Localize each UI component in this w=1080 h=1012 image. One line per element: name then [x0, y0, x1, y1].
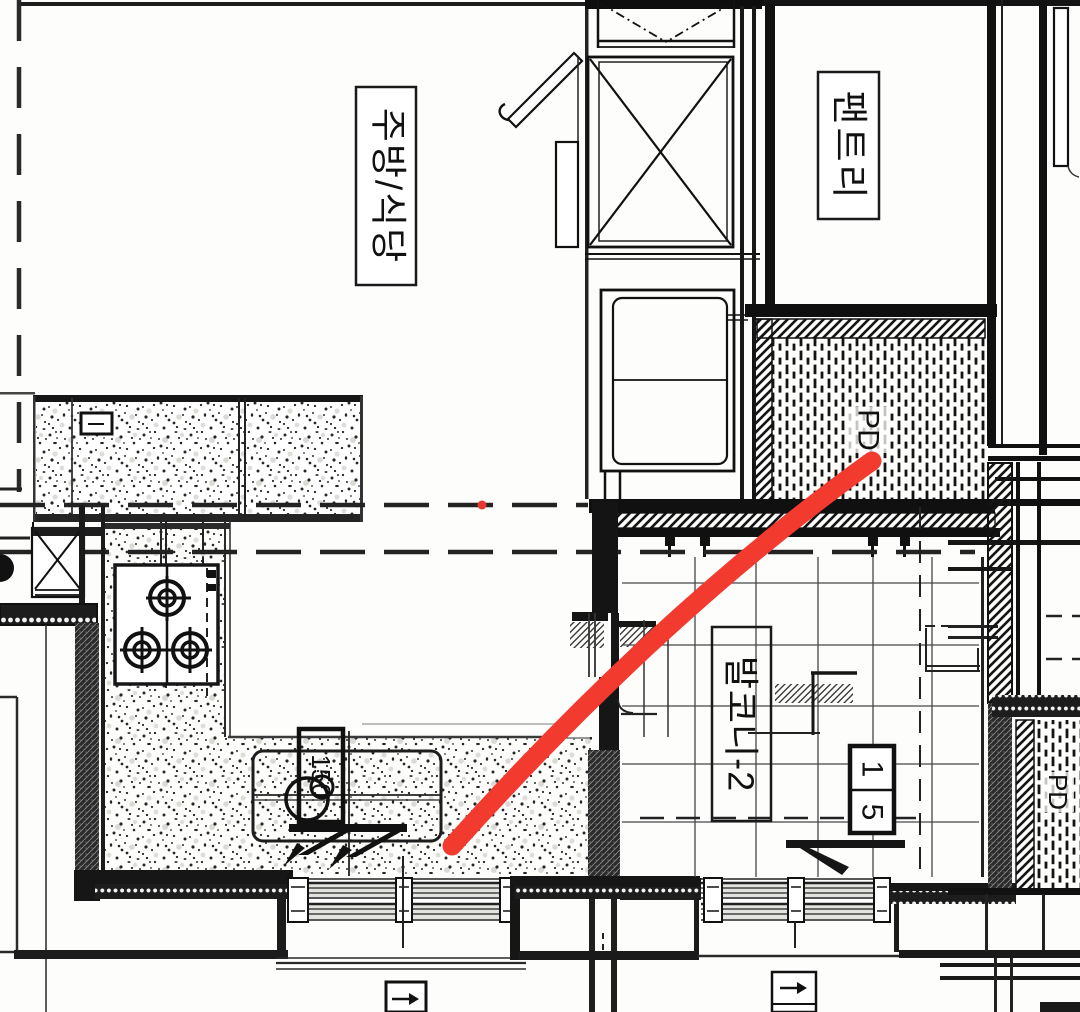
svg-text:발코니-2: 발코니-2: [721, 656, 762, 792]
svg-text:5: 5: [856, 804, 889, 821]
svg-text:팬트리: 팬트리: [829, 90, 870, 201]
svg-text:주방/식당: 주방/식당: [368, 108, 409, 264]
svg-text:150: 150: [306, 754, 336, 797]
svg-text:PD: PD: [1043, 774, 1073, 810]
svg-text:1: 1: [856, 761, 889, 778]
svg-text:PD: PD: [852, 409, 885, 451]
